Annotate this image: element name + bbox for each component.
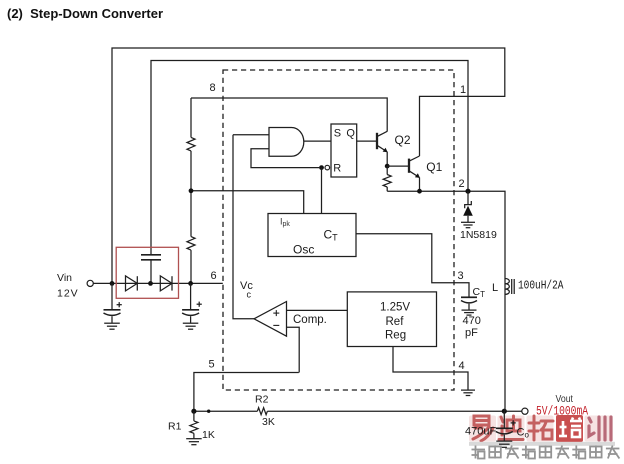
- svg-text:470: 470: [463, 315, 481, 327]
- svg-text:3K: 3K: [262, 416, 275, 428]
- svg-text:12V: 12V: [57, 288, 79, 300]
- svg-text:c: c: [247, 290, 252, 300]
- svg-text:Q: Q: [346, 128, 355, 140]
- svg-text:Ref: Ref: [386, 316, 405, 328]
- svg-text:CT: CT: [324, 227, 339, 242]
- svg-text:470uF: 470uF: [465, 426, 496, 438]
- svg-text:CT: CT: [473, 286, 486, 299]
- svg-text:8: 8: [210, 82, 216, 94]
- svg-text:R2: R2: [255, 394, 269, 406]
- svg-text:Vin: Vin: [57, 272, 72, 284]
- svg-text:3: 3: [458, 270, 464, 282]
- svg-text:pF: pF: [465, 327, 478, 339]
- svg-text:Reg: Reg: [385, 329, 406, 341]
- svg-text:1.25V: 1.25V: [380, 302, 410, 314]
- svg-text:1: 1: [460, 84, 466, 96]
- svg-text:6: 6: [211, 270, 217, 282]
- svg-text:Comp.: Comp.: [293, 314, 327, 326]
- svg-text:1N5819: 1N5819: [460, 229, 497, 241]
- svg-text:Q1: Q1: [426, 160, 442, 174]
- svg-text:2: 2: [459, 178, 465, 190]
- svg-text:Q2: Q2: [395, 133, 411, 147]
- svg-text:Osc: Osc: [293, 243, 314, 257]
- svg-text:S: S: [334, 127, 341, 139]
- svg-text:R: R: [333, 163, 341, 175]
- svg-text:L: L: [492, 282, 498, 294]
- svg-text:R1: R1: [168, 421, 182, 433]
- svg-text:1K: 1K: [202, 429, 215, 441]
- svg-text:5V/1000mA: 5V/1000mA: [536, 404, 588, 419]
- svg-text:Ipk: Ipk: [280, 217, 290, 229]
- svg-text:4: 4: [459, 360, 465, 372]
- svg-text:5: 5: [209, 359, 215, 371]
- svg-text:100uH/2A: 100uH/2A: [518, 278, 564, 292]
